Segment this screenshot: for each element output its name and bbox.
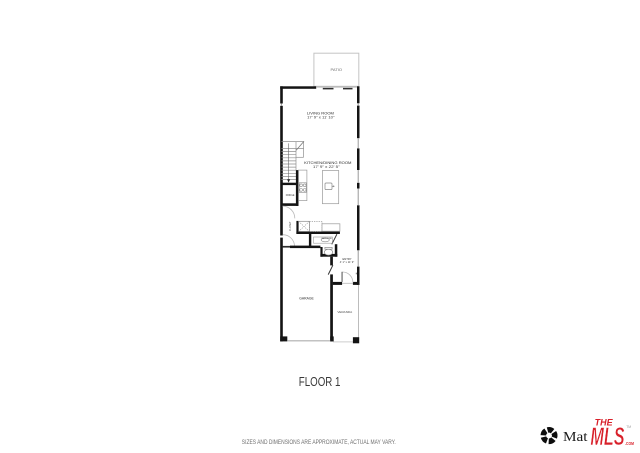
svg-text:Mat: Mat	[563, 429, 588, 444]
svg-text:WARDROBE: WARDROBE	[321, 237, 332, 240]
svg-text:SIZES AND DIMENSIONS ARE APPRO: SIZES AND DIMENSIONS ARE APPROXIMATE, AC…	[242, 440, 396, 446]
svg-text:CLOSET: CLOSET	[289, 221, 292, 231]
svg-text:VERANDA: VERANDA	[337, 310, 352, 314]
svg-text:PATIO: PATIO	[331, 68, 343, 72]
svg-text:MLS: MLS	[590, 423, 624, 451]
svg-text:4' 1" x 11' 9": 4' 1" x 11' 9"	[340, 260, 354, 264]
svg-text:GARAGE: GARAGE	[299, 296, 314, 300]
svg-text:TM: TM	[626, 425, 631, 429]
svg-text:FRIDGE: FRIDGE	[286, 194, 295, 197]
svg-text:17' 9" x 11' 10": 17' 9" x 11' 10"	[307, 116, 335, 120]
svg-text:17' 9" x 22' 5": 17' 9" x 22' 5"	[313, 165, 341, 169]
svg-text:FLOOR 1: FLOOR 1	[299, 374, 341, 389]
svg-text:.COM: .COM	[625, 441, 634, 446]
